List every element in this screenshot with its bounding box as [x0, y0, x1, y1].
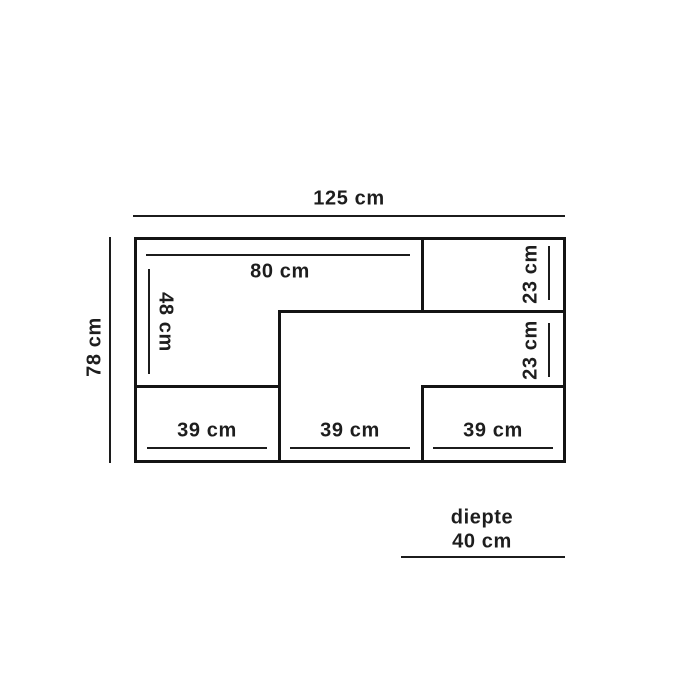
label-left-compartment-height: 48 cm	[154, 292, 177, 352]
label-total-height: 78 cm	[84, 317, 107, 377]
label-top-shelf-width: 80 cm	[250, 261, 310, 284]
dim-line-top-right-height	[548, 246, 550, 300]
label-bottom-right-width: 39 cm	[463, 420, 523, 443]
label-bottom-left-width: 39 cm	[177, 420, 237, 443]
label-middle-right-compartment-height: 23 cm	[520, 320, 543, 380]
label-bottom-middle-width: 39 cm	[320, 420, 380, 443]
label-top-right-compartment-height: 23 cm	[520, 244, 543, 304]
divider-top-right-vertical	[421, 237, 424, 313]
divider-bottom-right-horizontal	[421, 385, 566, 388]
dim-line-middle-right-height	[548, 323, 550, 377]
furniture-dimension-diagram: 125 cm 78 cm 80 cm 48 cm 23 cm 23 cm 39 …	[0, 0, 700, 700]
dim-line-depth	[401, 556, 565, 558]
label-total-width: 125 cm	[313, 188, 384, 211]
dim-line-total-height	[109, 237, 111, 463]
dim-line-bottom-left-width	[147, 447, 267, 449]
label-depth-value: 40 cm	[452, 531, 512, 554]
divider-bottom-left-horizontal	[134, 385, 281, 388]
divider-bottom-right-vertical	[421, 385, 424, 463]
dim-line-top-shelf-width	[146, 254, 410, 256]
dim-line-left-compartment-height	[148, 269, 150, 374]
label-depth-caption: diepte	[451, 507, 514, 530]
dim-line-bottom-right-width	[433, 447, 553, 449]
dim-line-total-width	[133, 215, 565, 217]
dim-line-bottom-middle-width	[290, 447, 410, 449]
divider-middle-horizontal	[278, 310, 566, 313]
